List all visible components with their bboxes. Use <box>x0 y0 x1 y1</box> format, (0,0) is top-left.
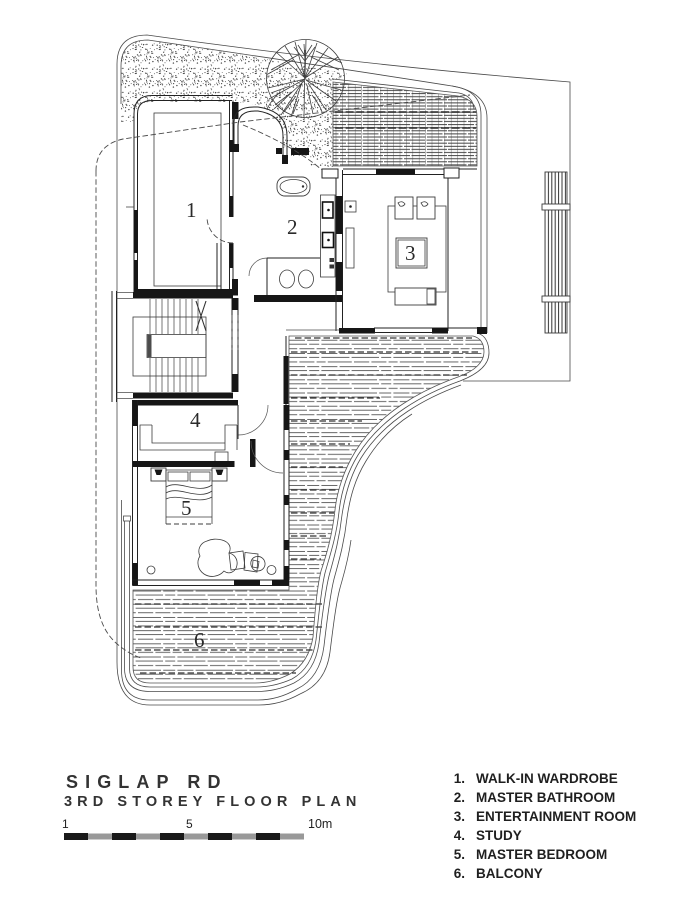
svg-text:6.: 6. <box>454 866 465 881</box>
svg-text:6: 6 <box>194 628 205 652</box>
svg-text:5.: 5. <box>454 847 465 862</box>
svg-text:1: 1 <box>186 198 197 222</box>
svg-text:ENTERTAINMENT ROOM: ENTERTAINMENT ROOM <box>476 809 636 824</box>
svg-text:1.: 1. <box>454 771 465 786</box>
svg-text:WALK-IN WARDROBE: WALK-IN WARDROBE <box>476 771 618 786</box>
svg-text:STUDY: STUDY <box>476 828 522 843</box>
svg-text:1: 1 <box>62 817 69 831</box>
svg-text:BALCONY: BALCONY <box>476 866 543 881</box>
svg-text:5: 5 <box>186 817 193 831</box>
svg-text:3: 3 <box>405 241 416 265</box>
svg-text:MASTER BATHROOM: MASTER BATHROOM <box>476 790 615 805</box>
svg-text:10m: 10m <box>308 817 332 831</box>
svg-text:MASTER BEDROOM: MASTER BEDROOM <box>476 847 607 862</box>
svg-text:3.: 3. <box>454 809 465 824</box>
svg-text:4: 4 <box>190 408 201 432</box>
svg-text:4.: 4. <box>454 828 465 843</box>
svg-text:2: 2 <box>287 215 298 239</box>
svg-text:3RD STOREY FLOOR PLAN: 3RD STOREY FLOOR PLAN <box>64 794 362 810</box>
svg-text:SIGLAP RD: SIGLAP RD <box>66 772 228 792</box>
svg-text:5: 5 <box>181 496 192 520</box>
svg-text:2.: 2. <box>454 790 465 805</box>
